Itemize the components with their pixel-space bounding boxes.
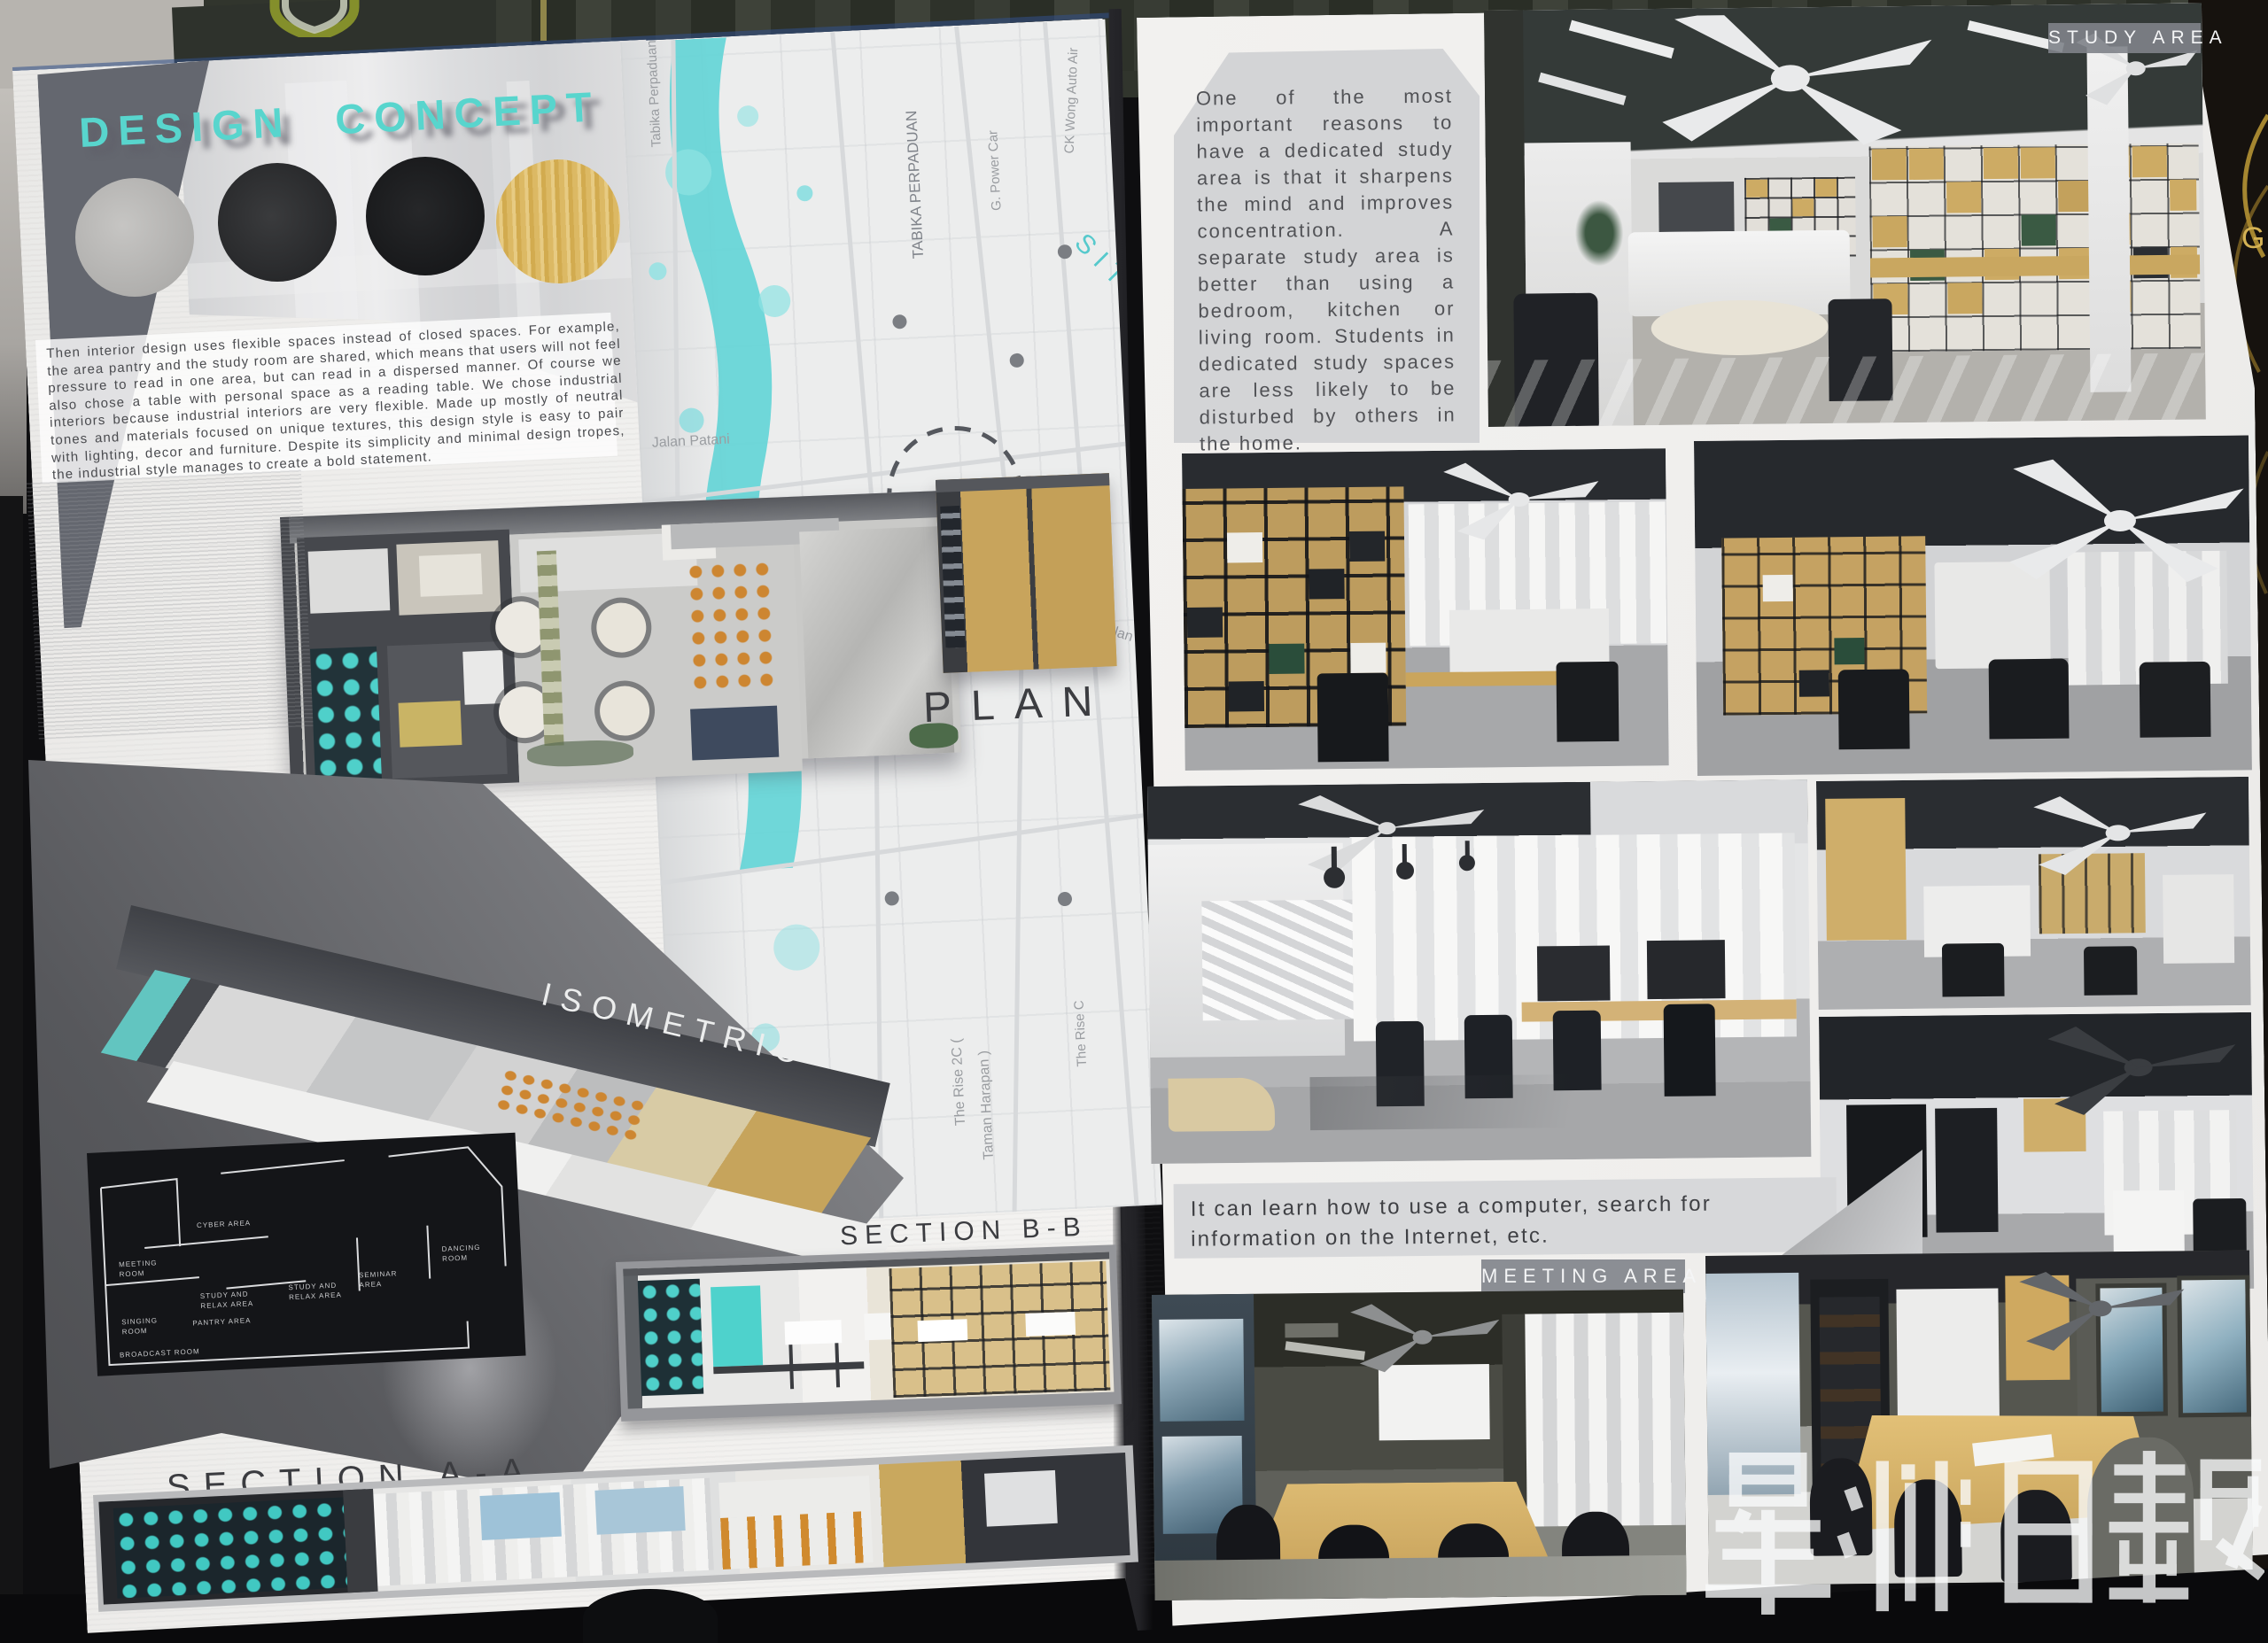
svg-text:Tabika Perpaduan: Tabika Perpaduan [644, 40, 664, 148]
svg-text:RELAX AREA: RELAX AREA [289, 1290, 342, 1301]
svg-text:AREA: AREA [359, 1280, 382, 1289]
svg-text:CK Wong Auto Air: CK Wong Auto Air [1062, 47, 1082, 153]
svg-text:G: G [2241, 221, 2264, 255]
svg-text:The Rise 2C (: The Rise 2C ( [949, 1037, 968, 1126]
svg-text:ROOM: ROOM [119, 1269, 144, 1278]
svg-text:STUDY AND: STUDY AND [200, 1290, 249, 1300]
svg-text:STUDY AND: STUDY AND [288, 1282, 337, 1292]
svg-text:CYBER AREA: CYBER AREA [197, 1219, 252, 1229]
svg-text:Taman Harapan ): Taman Harapan ) [976, 1050, 997, 1160]
svg-text:G. Power Car: G. Power Car [985, 130, 1004, 212]
svg-text:ROOM: ROOM [122, 1327, 148, 1336]
svg-text:BROADCAST ROOM: BROADCAST ROOM [120, 1347, 200, 1359]
svg-text:RELAX AREA: RELAX AREA [200, 1299, 253, 1310]
svg-text:ROOM: ROOM [442, 1254, 468, 1263]
svg-text:TABIKA PERPADUAN: TABIKA PERPADUAN [903, 110, 927, 259]
svg-text:MEETING: MEETING [119, 1259, 158, 1268]
svg-text:DANCING: DANCING [441, 1244, 480, 1253]
svg-text:SEMINAR: SEMINAR [359, 1269, 398, 1279]
svg-text:PANTRY AREA: PANTRY AREA [192, 1316, 251, 1327]
svg-text:The Rise C: The Rise C [1071, 1000, 1090, 1067]
svg-text:SINGING: SINGING [121, 1316, 158, 1326]
